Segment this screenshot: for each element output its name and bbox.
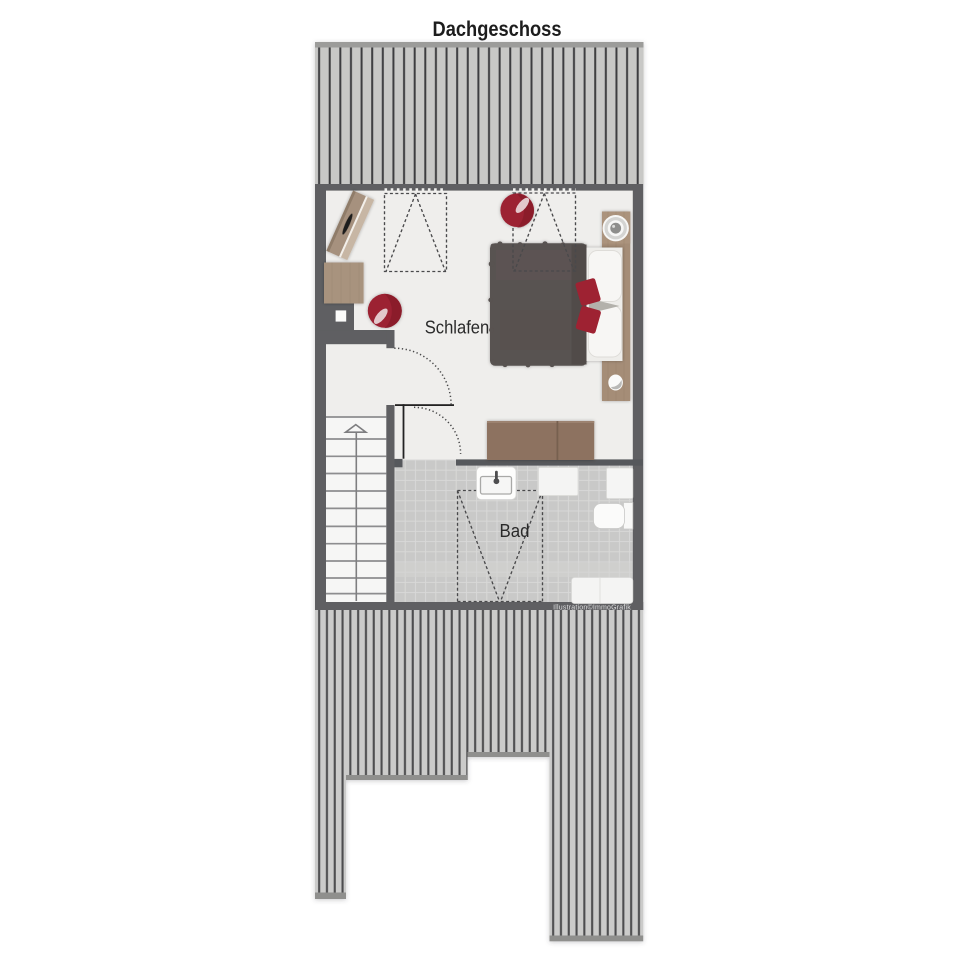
svg-text:Bad: Bad: [500, 521, 530, 541]
svg-text:Dachgeschoss: Dachgeschoss: [433, 18, 562, 41]
svg-text:Schlafen: Schlafen: [425, 318, 490, 338]
